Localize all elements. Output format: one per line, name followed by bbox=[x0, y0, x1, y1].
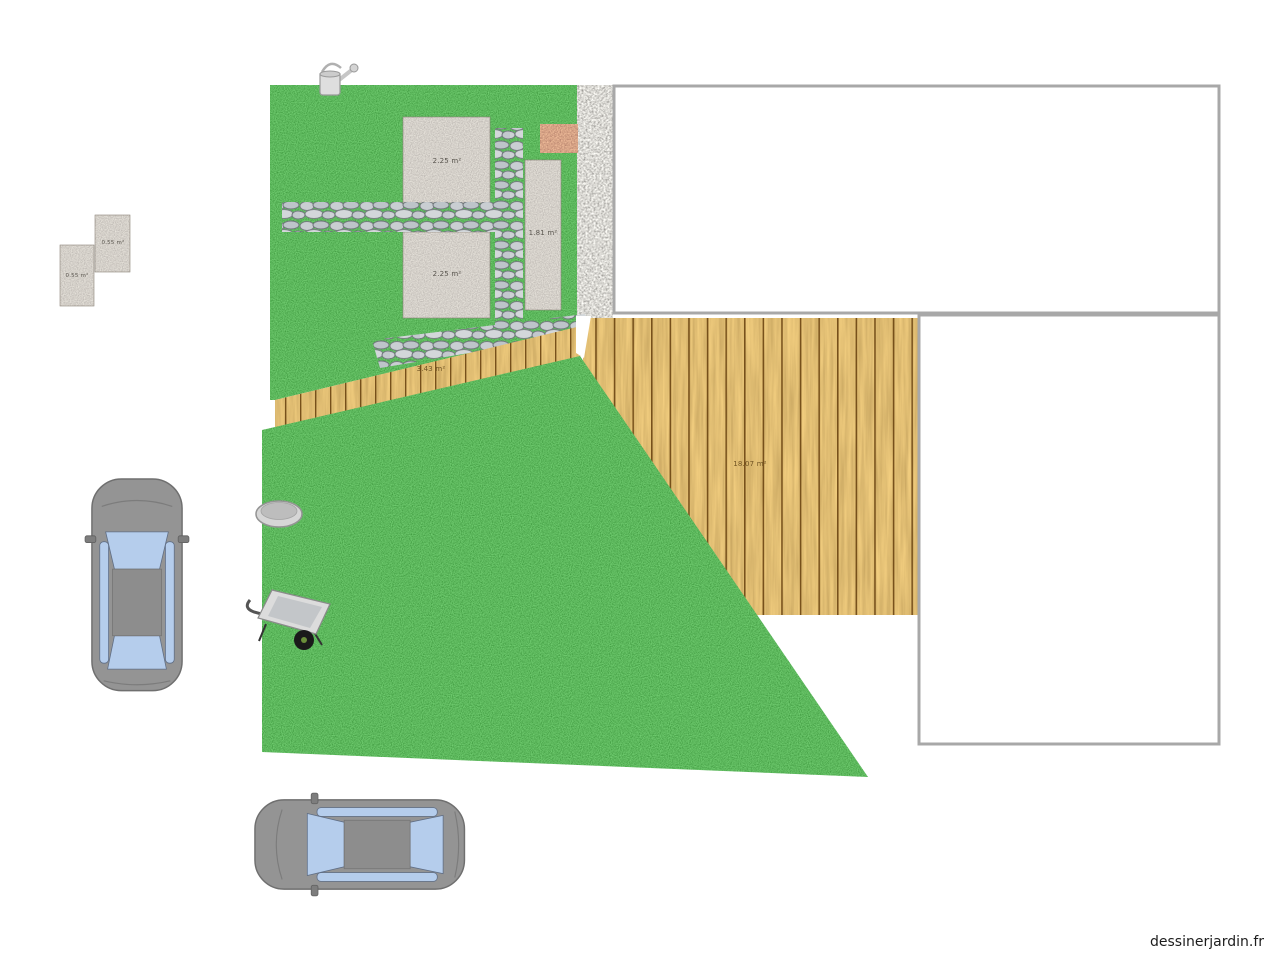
building-annex[interactable] bbox=[919, 315, 1219, 744]
building-main[interactable] bbox=[614, 86, 1219, 313]
brick-patch[interactable] bbox=[540, 124, 578, 153]
small-slab-lower[interactable] bbox=[60, 245, 94, 306]
stone-border-horizontal[interactable] bbox=[282, 202, 500, 232]
stone-border-vertical[interactable] bbox=[495, 128, 523, 326]
bowl-planter[interactable] bbox=[256, 501, 302, 527]
car-vertical[interactable] bbox=[85, 479, 189, 691]
paving-slab-bottom[interactable] bbox=[403, 232, 490, 318]
paving-slab-tall[interactable] bbox=[525, 160, 561, 310]
small-slab-upper[interactable] bbox=[95, 215, 130, 272]
site-watermark: dessinerjardin.fr bbox=[1150, 934, 1264, 950]
car-horizontal[interactable] bbox=[255, 793, 465, 896]
paving-slab-top[interactable] bbox=[403, 117, 490, 203]
garden-plan-canvas: 2.25 m² 2.25 m² 1.81 m² 0.55 m² 0.55 m² … bbox=[0, 0, 1280, 960]
gravel-strip[interactable] bbox=[577, 85, 613, 318]
